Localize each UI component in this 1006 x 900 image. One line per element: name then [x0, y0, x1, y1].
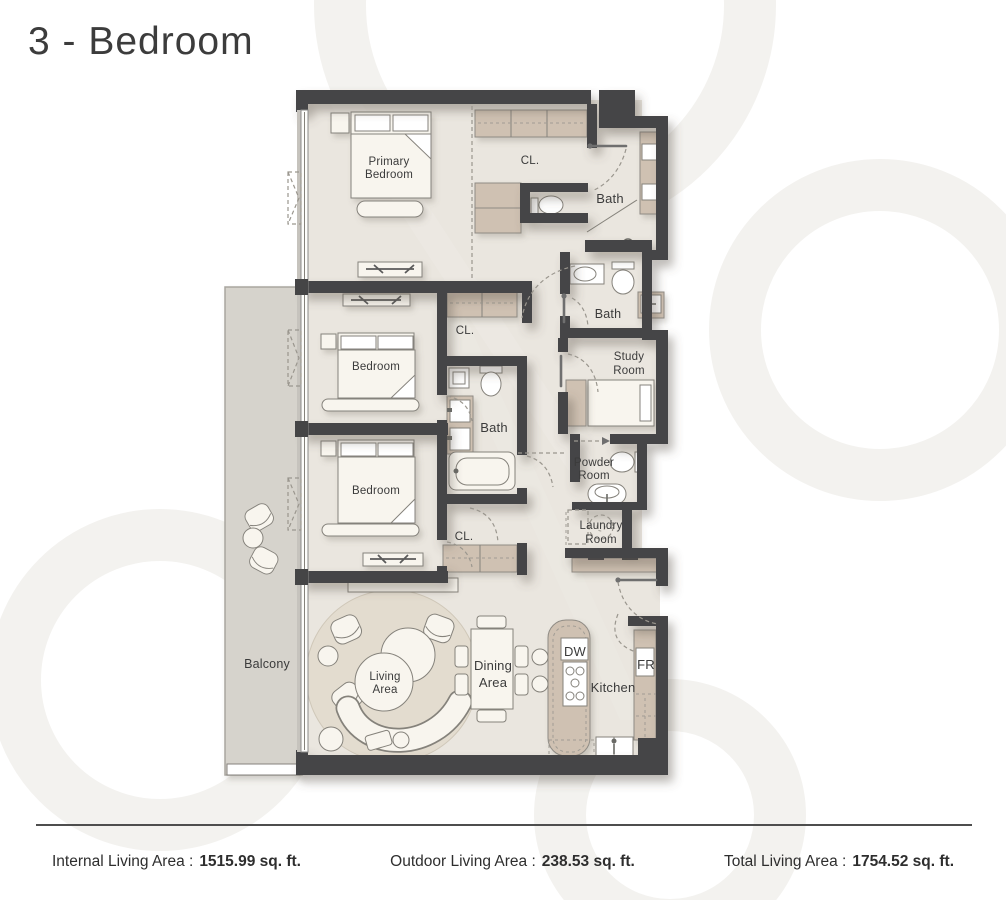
room-label-bedroom-2: Bedroom — [352, 361, 400, 373]
room-label-closet-primary: CL. — [521, 155, 540, 167]
footer-stats: Internal Living Area :1515.99 sq. ft. Ou… — [0, 853, 1006, 871]
balcony-area — [225, 287, 302, 775]
room-label-bedroom-3: Bedroom — [352, 485, 400, 497]
stat-internal-label: Internal Living Area : — [52, 853, 193, 870]
room-label-bath-guest: Bath — [595, 307, 622, 321]
room-label-study-room-2: Room — [613, 365, 644, 377]
room-label-fridge: FR — [637, 657, 655, 672]
room-label-closet-3: CL. — [455, 531, 474, 543]
stat-outdoor-label: Outdoor Living Area : — [390, 853, 536, 870]
room-label-powder-room: Powder — [574, 457, 614, 469]
room-label-dishwasher: DW — [564, 644, 587, 659]
stat-total-value: 1754.52 sq. ft. — [852, 853, 954, 870]
stat-internal-living-area: Internal Living Area :1515.99 sq. ft. — [52, 853, 301, 871]
room-label-primary-bedroom: Primary — [368, 156, 409, 168]
room-label-closet-2: CL. — [456, 325, 475, 337]
entry-console — [572, 558, 662, 572]
room-label-laundry-room: Laundry — [580, 520, 623, 532]
room-label-balcony: Balcony — [244, 657, 290, 671]
stat-total-label: Total Living Area : — [724, 853, 846, 870]
stat-total-living-area: Total Living Area :1754.52 sq. ft. — [724, 853, 954, 871]
stat-internal-value: 1515.99 sq. ft. — [199, 853, 301, 870]
room-label-living-area: Living — [369, 671, 400, 683]
room-label-bath-primary: Bath — [596, 191, 624, 206]
room-label-living-area-2: Area — [372, 684, 397, 696]
footer-divider — [36, 824, 972, 826]
floorplan-page: Primary Bedroom CL. Bath Bath Study Room… — [0, 0, 1006, 900]
room-label-dining-area: Dining — [474, 658, 512, 673]
page-title: 3 - Bedroom — [28, 20, 254, 64]
study-closet — [566, 380, 586, 426]
room-label-primary-bedroom-2: Bedroom — [365, 169, 413, 181]
room-label-bath-middle: Bath — [480, 420, 508, 435]
room-label-kitchen: Kitchen — [591, 680, 636, 695]
floor-plan: Primary Bedroom CL. Bath Bath Study Room… — [0, 0, 1006, 900]
stat-outdoor-living-area: Outdoor Living Area :238.53 sq. ft. — [390, 853, 635, 871]
stat-outdoor-value: 238.53 sq. ft. — [542, 853, 635, 870]
room-label-study-room: Study — [614, 351, 644, 363]
room-label-dining-area-2: Area — [479, 675, 508, 690]
room-label-powder-room-2: Room — [578, 470, 609, 482]
room-label-laundry-room-2: Room — [585, 534, 616, 546]
